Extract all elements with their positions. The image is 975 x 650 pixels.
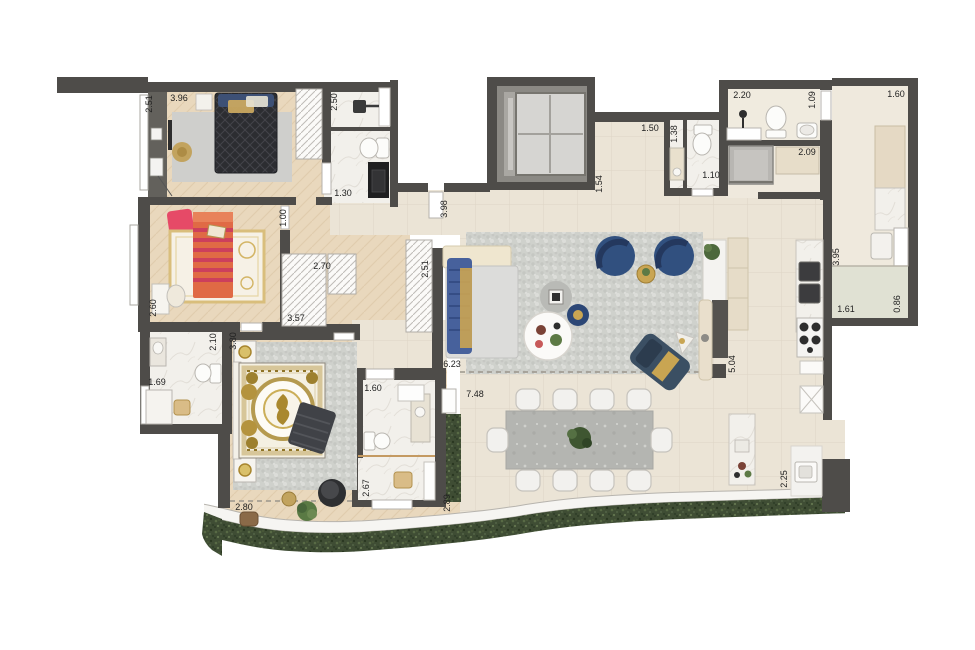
svg-text:2.51: 2.51: [144, 95, 154, 113]
svg-text:1.60: 1.60: [887, 89, 905, 99]
svg-text:2.25: 2.25: [779, 470, 789, 488]
svg-text:1.60: 1.60: [364, 383, 382, 393]
svg-text:6.23: 6.23: [443, 359, 461, 369]
svg-text:7.48: 7.48: [466, 389, 484, 399]
svg-text:2.60: 2.60: [148, 299, 158, 317]
svg-text:3.57: 3.57: [287, 313, 305, 323]
svg-text:1.54: 1.54: [594, 175, 604, 193]
svg-text:1.69: 1.69: [148, 377, 166, 387]
svg-text:1.30: 1.30: [334, 188, 352, 198]
svg-text:2.80: 2.80: [235, 502, 253, 512]
svg-text:3.98: 3.98: [439, 200, 449, 218]
svg-text:2.89: 2.89: [442, 494, 452, 512]
svg-text:2.50: 2.50: [329, 93, 339, 111]
svg-text:1.50: 1.50: [641, 123, 659, 133]
svg-text:2.09: 2.09: [798, 147, 816, 157]
svg-text:1.38: 1.38: [669, 125, 679, 143]
svg-text:1.09: 1.09: [807, 91, 817, 109]
svg-text:1.00: 1.00: [278, 209, 288, 227]
svg-text:2.20: 2.20: [733, 90, 751, 100]
svg-text:2.10: 2.10: [208, 333, 218, 351]
svg-text:3.95: 3.95: [831, 248, 841, 266]
svg-text:1.61: 1.61: [837, 304, 855, 314]
svg-text:2.51: 2.51: [420, 260, 430, 278]
svg-text:3.96: 3.96: [170, 93, 188, 103]
svg-text:3.80: 3.80: [228, 332, 238, 350]
svg-text:1.10: 1.10: [702, 170, 720, 180]
svg-text:0.86: 0.86: [892, 295, 902, 313]
svg-text:5.04: 5.04: [727, 355, 737, 373]
svg-text:2.70: 2.70: [313, 261, 331, 271]
svg-text:2.67: 2.67: [361, 479, 371, 497]
